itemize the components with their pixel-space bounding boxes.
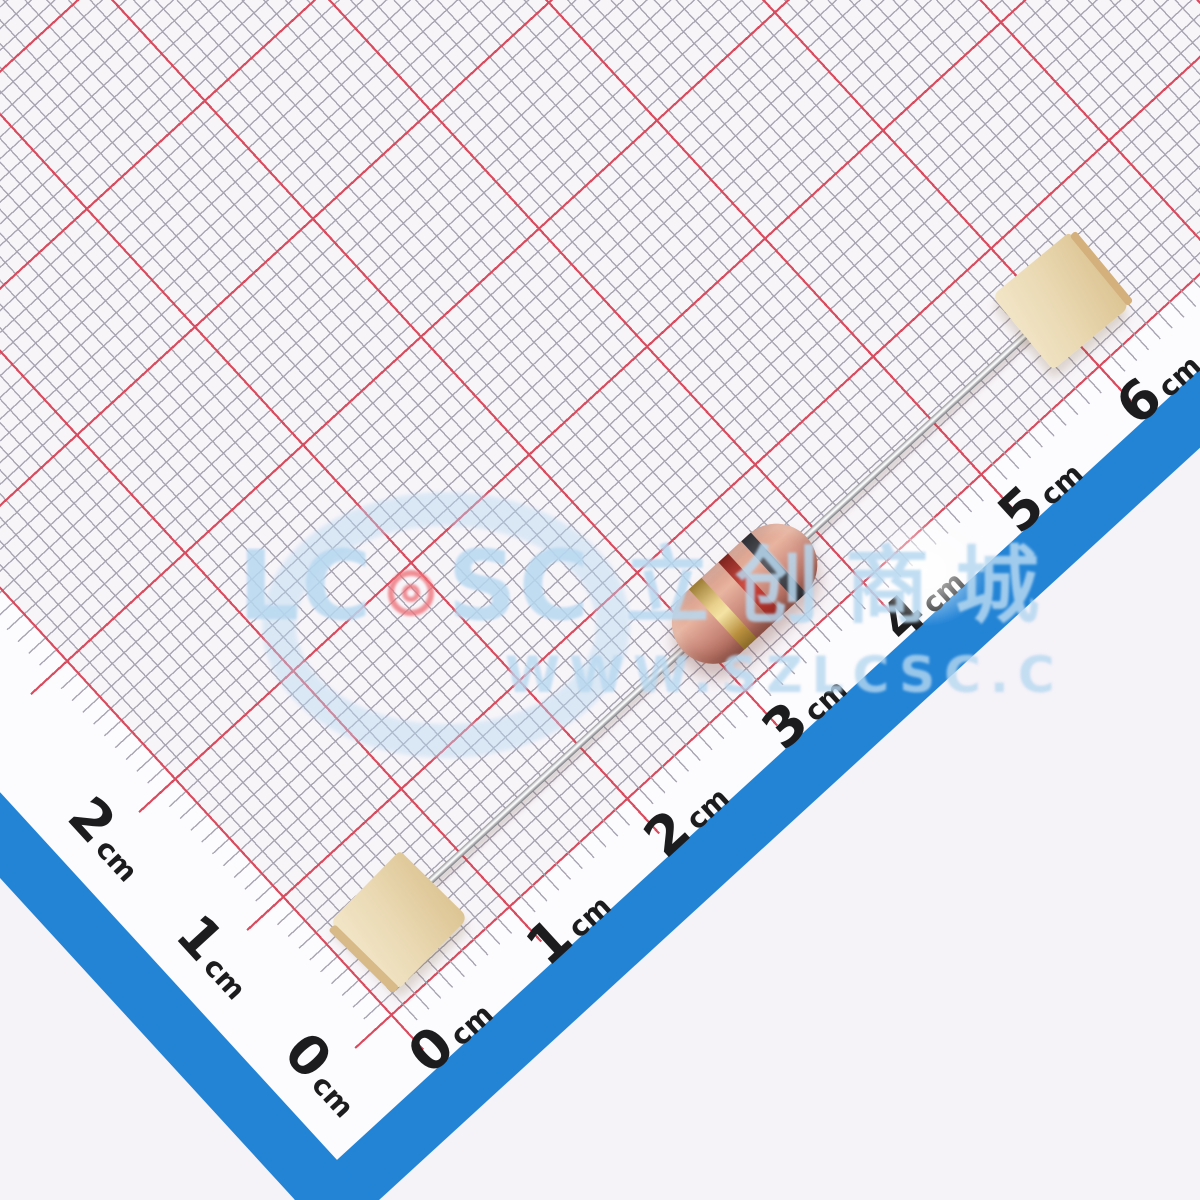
lens-flare — [840, 495, 1010, 645]
product-photo: 0cm1cm2cm3cm4cm5cm6cm 0cm1cm2cm LC SC 立创… — [0, 0, 1200, 1200]
